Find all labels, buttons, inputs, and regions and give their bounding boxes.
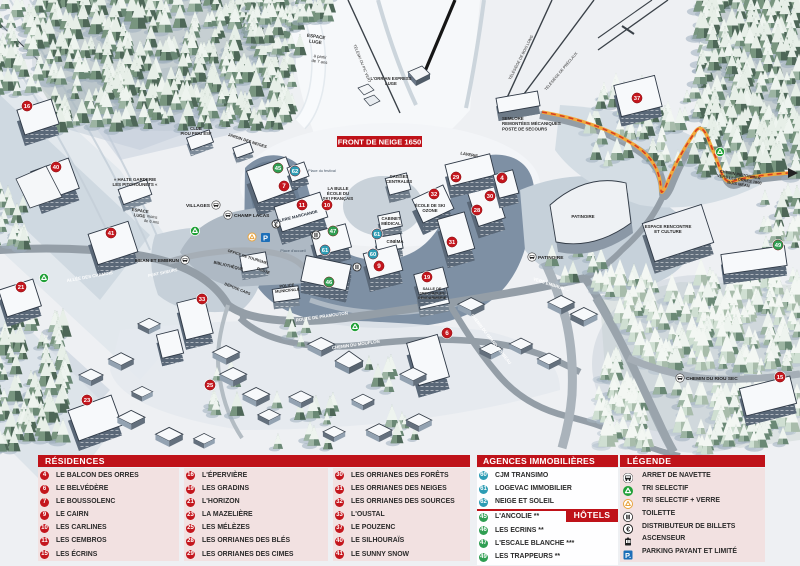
svg-text:ET CULTURE: ET CULTURE xyxy=(654,229,682,234)
svg-text:45: 45 xyxy=(275,166,282,172)
svg-text:PIOU PIOU ESF: PIOU PIOU ESF xyxy=(181,131,212,136)
svg-text:Place d'accueil: Place d'accueil xyxy=(280,249,305,253)
svg-text:33: 33 xyxy=(199,297,206,303)
svg-text:30: 30 xyxy=(487,194,493,200)
svg-text:15: 15 xyxy=(777,375,784,381)
svg-text:10: 10 xyxy=(324,203,330,209)
svg-text:CENTRALES: CENTRALES xyxy=(386,179,412,184)
svg-text:16: 16 xyxy=(24,104,31,110)
svg-text:60: 60 xyxy=(370,252,376,258)
svg-text:31: 31 xyxy=(449,240,456,246)
svg-text:9: 9 xyxy=(377,263,381,270)
svg-text:OZONE: OZONE xyxy=(422,208,437,213)
svg-text:61: 61 xyxy=(374,232,381,238)
svg-text:GENDARMERIE: GENDARMERIE xyxy=(418,296,447,300)
svg-text:CHAMP LACAS: CHAMP LACAS xyxy=(234,213,270,219)
svg-text:6: 6 xyxy=(445,330,449,337)
svg-text:28: 28 xyxy=(474,208,481,214)
svg-text:47: 47 xyxy=(330,229,336,235)
svg-text:SALLE DE: SALLE DE xyxy=(423,287,442,291)
svg-text:MEAN ET EMBRUN: MEAN ET EMBRUN xyxy=(135,258,180,264)
svg-text:CHEMIN DU RIOU SEC: CHEMIN DU RIOU SEC xyxy=(686,376,738,382)
svg-text:P.: P. xyxy=(625,551,631,560)
svg-text:61: 61 xyxy=(322,248,329,254)
svg-text:25: 25 xyxy=(207,383,214,389)
svg-text:40: 40 xyxy=(53,165,59,171)
svg-text:49: 49 xyxy=(775,243,782,249)
svg-text:32: 32 xyxy=(431,192,437,198)
svg-text:46: 46 xyxy=(326,280,333,286)
svg-text:23: 23 xyxy=(84,398,91,404)
svg-text:PATINOIRE: PATINOIRE xyxy=(571,214,594,219)
svg-text:11: 11 xyxy=(299,203,306,209)
svg-text:PATINOIRE: PATINOIRE xyxy=(538,255,564,261)
svg-text:21: 21 xyxy=(18,285,25,291)
svg-text:19: 19 xyxy=(424,275,431,281)
svg-text:SPECTACLES: SPECTACLES xyxy=(419,292,445,296)
svg-text:CINÉMA: CINÉMA xyxy=(387,239,404,244)
svg-text:P: P xyxy=(263,234,268,243)
svg-text:Place du festival: Place du festival xyxy=(308,169,336,173)
svg-text:FRONT DE NEIGE 1650: FRONT DE NEIGE 1650 xyxy=(338,137,422,146)
svg-text:37: 37 xyxy=(634,96,640,102)
svg-text:41: 41 xyxy=(108,231,115,237)
svg-text:29: 29 xyxy=(453,175,460,181)
svg-text:LES PITCHOUNETS «: LES PITCHOUNETS « xyxy=(113,182,158,187)
svg-text:4: 4 xyxy=(500,175,504,182)
svg-text:LUGE: LUGE xyxy=(385,81,397,86)
svg-text:POSTE DE SECOURS: POSTE DE SECOURS xyxy=(502,126,547,131)
svg-text:7: 7 xyxy=(282,183,286,190)
svg-text:VILLAGES: VILLAGES xyxy=(186,203,211,209)
svg-text:62: 62 xyxy=(292,169,298,175)
svg-text:MÉDICAL: MÉDICAL xyxy=(381,221,401,226)
